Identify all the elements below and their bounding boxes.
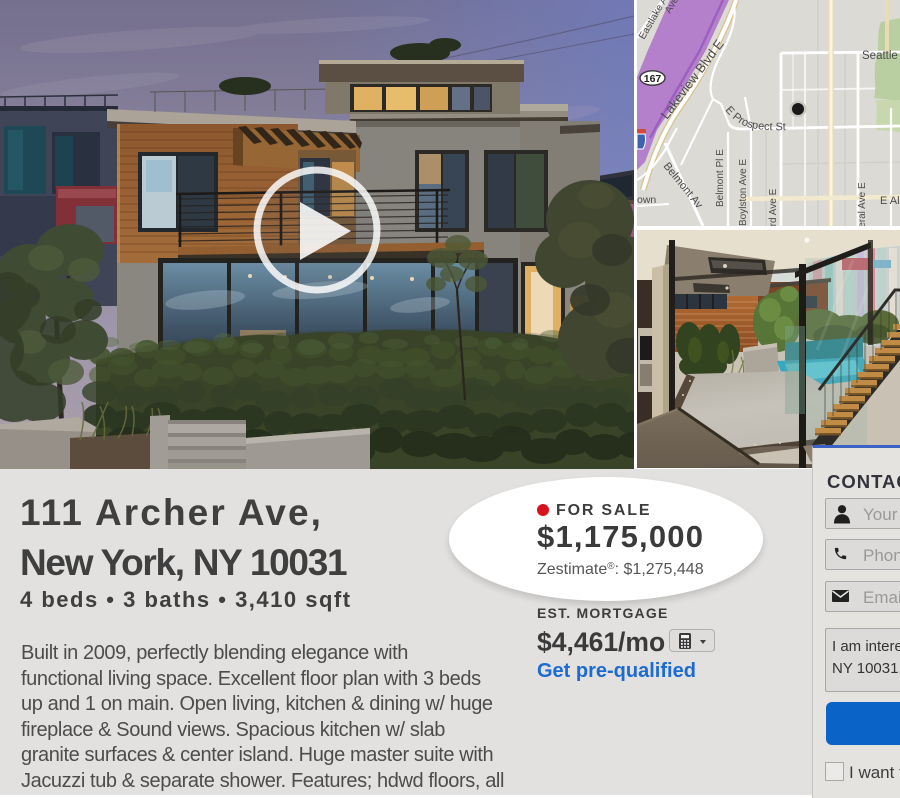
svg-text:Belmont Pl E: Belmont Pl E xyxy=(715,149,726,207)
svg-text:Seattle: Seattle xyxy=(862,50,898,62)
svg-text:own: own xyxy=(637,194,656,206)
svg-text:167: 167 xyxy=(644,73,662,85)
svg-text:Harvard Ave E: Harvard Ave E xyxy=(768,188,779,226)
svg-text:Federal Ave E: Federal Ave E xyxy=(857,182,868,226)
svg-text:Boylston Ave E: Boylston Ave E xyxy=(738,159,749,226)
svg-text:E Al: E Al xyxy=(880,195,900,207)
